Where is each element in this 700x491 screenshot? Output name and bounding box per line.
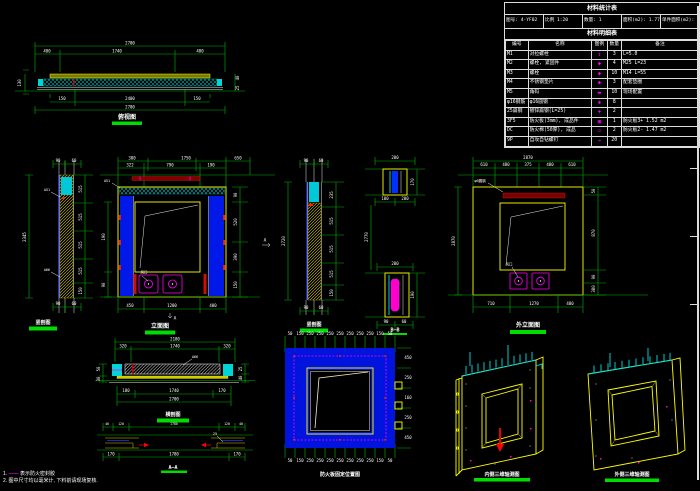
dim-label: 2770 — [364, 232, 369, 242]
table-cell-sym: ↕ — [592, 50, 607, 60]
dim-label: 380 — [591, 285, 596, 293]
table-row: M2螺栓, 紧固件◆4M25 L=23 — [506, 60, 699, 70]
dim-label: 190 — [101, 233, 106, 241]
table-cell-note: L=5.0 — [621, 50, 698, 60]
title-underline — [510, 330, 546, 334]
dim-label: 322 — [126, 163, 134, 168]
table-cell-no: DC — [506, 127, 529, 137]
svg-text:50: 50 — [288, 458, 293, 463]
end-cap — [223, 364, 233, 376]
front-face — [462, 360, 536, 470]
note-line: 2. 图中尺寸均以毫米计, 下料前请现场复核. — [3, 478, 98, 485]
table-cell-name: 防火板(3mm), 成品件 — [528, 117, 592, 127]
sheet-info-row: 图号: 4-YF02比例 1:20数量: 1面积(m2): 1.77单件面积(m… — [505, 15, 699, 29]
side-return — [536, 357, 543, 454]
dim-label: 50 — [96, 366, 101, 371]
dim-label: 90 — [101, 282, 106, 287]
dim-label: 235 — [329, 191, 334, 199]
dim-label: 60 — [319, 158, 324, 163]
dim-label: 480 — [196, 49, 204, 54]
table-cell-sym: ✚ — [592, 108, 607, 118]
table-cell-note: 防火板3+ 1.52 m2 — [621, 117, 698, 127]
view-title: 竖剖图 — [306, 321, 321, 328]
table-cell-sym: ◆ — [592, 69, 607, 79]
fireboard-hatch — [125, 364, 220, 374]
dim-label: 390 — [233, 253, 238, 261]
column-header: 图例 — [592, 41, 607, 51]
section-body — [59, 175, 74, 298]
bottom-joint-detail — [385, 273, 409, 317]
table-cell-no: M3 — [506, 69, 529, 79]
dim-label: 1780 — [169, 452, 179, 457]
dim-label: 200 — [391, 155, 399, 160]
panel-body — [285, 348, 402, 448]
panel-3d — [588, 348, 685, 470]
anchor-mark — [73, 79, 75, 86]
table-cell-note — [621, 136, 698, 146]
title-underline — [145, 331, 175, 335]
sheet-info-cell: 比例 1:20 — [544, 15, 583, 28]
svg-text:450: 450 — [404, 435, 412, 440]
dim-label: 710 — [487, 301, 495, 306]
svg-text:450: 450 — [404, 355, 412, 360]
table-cell-qty: 8 — [607, 98, 621, 108]
section-mark: A — [264, 238, 267, 244]
svg-text:250: 250 — [366, 458, 374, 463]
dim-label: 320 — [119, 344, 127, 349]
note-number: 1. — [3, 471, 7, 477]
rivet-dots — [596, 380, 673, 459]
table-cell-sym: ✱ — [592, 98, 607, 108]
section-mark: A — [174, 316, 177, 322]
table-row: M1对拉螺栓↕3L=5.0 — [506, 50, 699, 60]
opening-frame — [135, 202, 200, 272]
column-header: 名称 — [528, 41, 592, 51]
dim-label: 1200 — [167, 303, 177, 308]
side-return — [672, 358, 685, 454]
drawing-right-elevation: 2870 610 480 375 480 610 φ6圆钢 风口 2870 50… — [448, 155, 648, 335]
dim-label: 120 — [118, 422, 124, 426]
dim-label: 60 — [72, 301, 77, 306]
table-cell-qty: 2 — [607, 127, 621, 137]
view-title: 防火板固定位置图 — [320, 471, 360, 478]
dim-label: 190 — [410, 291, 415, 299]
dim-label: 150 — [233, 281, 238, 289]
dim-label: 1740 — [170, 344, 180, 349]
dim-label: 1750 — [181, 156, 191, 161]
table-cell-note: 防火板2- 1.47 m2 — [621, 127, 698, 137]
dim-label: 480 — [546, 162, 554, 167]
section-body — [95, 364, 255, 383]
table-cell-qty: 1 — [607, 117, 621, 127]
corner-bracket — [536, 364, 542, 369]
dim-label: 90 — [233, 192, 238, 197]
dim-label: 200 — [391, 261, 399, 266]
anchor-mark — [62, 197, 65, 199]
drawing-center-elevation: 300 1750 650 322 790 190 A51 风口 90 520 3… — [100, 155, 275, 335]
table-row: φ16钢筋φ16圆钢✱8 — [506, 98, 699, 108]
view-title: A—A — [168, 465, 177, 471]
table-cell-name: 螺栓, 紧固件 — [528, 60, 592, 70]
svg-text:50: 50 — [388, 331, 393, 336]
table-cell-note — [621, 108, 698, 118]
svg-text:50: 50 — [388, 458, 393, 463]
dim-label: 170 — [233, 452, 241, 457]
table-cell-name: 镀锌扁钢(L=25) — [528, 108, 592, 118]
dim-label: 150 — [329, 289, 334, 297]
dim-label: 2700 — [169, 397, 179, 402]
dim-label: 1270 — [529, 301, 539, 306]
dim-label: 190 — [207, 163, 215, 168]
table-cell-no: M4 — [506, 79, 529, 89]
dim-label: 515 — [329, 217, 334, 225]
dim-label: 2870 — [451, 236, 456, 246]
dim-label: 90 — [384, 319, 389, 324]
section-body — [307, 182, 322, 300]
table-cell-no: φ16钢筋 — [506, 98, 529, 108]
svg-text:250: 250 — [366, 331, 374, 336]
svg-text:150: 150 — [296, 331, 304, 336]
dim-label: 650 — [234, 156, 242, 161]
drawing-axo-inner: 内侧三维轴测图 — [440, 336, 570, 482]
table-cell-name: 螺栓 — [528, 69, 592, 79]
table-subtitle: 材料明细表 — [505, 29, 699, 40]
table-cell-note: M25 L=23 — [621, 60, 698, 70]
view-title: 立面图 — [151, 322, 169, 330]
leader-label: A51 — [104, 179, 110, 183]
drawing-bb-detail: 200 170 100 200 2770 200 190 90 60 B—B — [363, 155, 428, 335]
sheet-edge-line — [697, 6, 699, 480]
dim-label: 90 — [56, 158, 61, 163]
svg-text:150: 150 — [296, 458, 304, 463]
panel-3d — [456, 345, 543, 476]
leader-label: φ6圆钢 — [474, 178, 486, 183]
svg-text:250: 250 — [336, 331, 344, 336]
sheet-info-cell: 单件面积(m2): 1.21 — [661, 15, 699, 28]
leader-label: A66 — [192, 355, 198, 359]
dim-label: 50 — [591, 188, 596, 193]
rivet-dots — [466, 370, 531, 465]
table-cell-no: M5 — [506, 88, 529, 98]
drawing-bottom-section: 2180 320 1740 320 A66 50 30 25 40 180 17… — [95, 336, 255, 424]
infill-left — [120, 196, 133, 296]
plan-body — [15, 74, 245, 91]
table-cell-sym: ➔ — [592, 136, 607, 146]
dim-label: 2400 — [125, 96, 135, 101]
view-title: 外立面图 — [515, 321, 540, 329]
dim-label: 90 — [591, 274, 596, 279]
dim-label: 450 — [126, 303, 134, 308]
dim-label: 130 — [17, 79, 22, 87]
dim-label: 790 — [166, 163, 174, 168]
dim-label: 170 — [218, 388, 226, 393]
anchor-mark — [132, 364, 134, 374]
dim-label: 870 — [591, 229, 596, 237]
steel-angle-bar — [117, 376, 228, 379]
materials-header: 编号名称图例数量备注 — [506, 41, 699, 51]
table-cell-sym: ▭ — [592, 127, 607, 137]
table-cell-qty: 4 — [607, 60, 621, 70]
dim-label: 120 — [224, 422, 230, 426]
dim-label: 40 — [238, 375, 243, 380]
table-cell-qty: 3 — [607, 79, 621, 89]
table-row: DC防火棉(50厚), 成品▭2防火板2- 1.47 m2 — [506, 127, 699, 137]
anchor-mark — [309, 204, 313, 206]
title-underline — [112, 122, 142, 126]
svg-text:250: 250 — [326, 458, 334, 463]
view-title: 横剖图 — [164, 411, 180, 418]
dim-label: 520 — [233, 218, 238, 226]
dim-label: 90 — [304, 158, 309, 163]
drawing-mid-section: 90 60 2720 235 515 515 515 150 90 60 竖剖图 — [278, 155, 363, 335]
dim-label: 30 — [96, 376, 101, 381]
dim-label: 2345 — [22, 232, 27, 242]
title-underline — [161, 471, 187, 474]
svg-text:250: 250 — [336, 458, 344, 463]
dim-label: 480 — [566, 301, 574, 306]
weld-studs — [594, 353, 670, 373]
svg-text:250: 250 — [346, 331, 354, 336]
table-cell-qty: 20 — [607, 136, 621, 146]
glass-diagonal — [140, 205, 198, 268]
svg-text:50: 50 — [288, 331, 293, 336]
table-cell-name: 角码 — [528, 88, 592, 98]
dim-label: 515 — [78, 241, 83, 249]
title-underline — [474, 478, 530, 482]
opening — [309, 370, 371, 432]
table-cell-qty: 2 — [607, 108, 621, 118]
dim-label: 400 — [209, 303, 217, 308]
sheet-edge-tick — [690, 236, 698, 237]
svg-text:250: 250 — [404, 415, 412, 420]
end-cap — [217, 79, 222, 86]
table-cell-sym: ▬ — [592, 88, 607, 98]
svg-text:150: 150 — [376, 458, 384, 463]
materials-rows: M1对拉螺栓↕3L=5.0M2螺栓, 紧固件◆4M25 L=23M3螺栓◆10M… — [506, 50, 699, 146]
view-title: 竖剖图 — [35, 319, 50, 326]
dim-label: 1780 — [170, 422, 178, 426]
dim-label: 610 — [568, 162, 576, 167]
mesh-strip — [43, 79, 217, 86]
leader-label: 风口 — [506, 263, 514, 267]
svg-text:250: 250 — [356, 458, 364, 463]
sheet-edge-tick — [690, 168, 698, 169]
dim-label: 2720 — [281, 236, 286, 246]
title-underline — [29, 327, 57, 331]
dim-label: 25 — [235, 85, 240, 90]
dim-label: 480 — [502, 162, 510, 167]
dim-label: 2700 — [125, 105, 135, 110]
dim-label: 40 — [235, 75, 240, 80]
table-cell-name: φ16圆钢 — [528, 98, 592, 108]
column-header: 编号 — [506, 41, 529, 51]
dim-label: 25 — [238, 366, 243, 371]
table-cell-no: 3F5 — [506, 117, 529, 127]
svg-text:150: 150 — [376, 331, 384, 336]
leader-label: 25 — [213, 432, 217, 436]
table-row: 3F5防火板(3mm), 成品件▣1防火板3+ 1.52 m2 — [506, 117, 699, 127]
table-cell-no: 9P — [506, 136, 529, 146]
leader-label: 风口 — [141, 271, 148, 275]
dim-label: 1740 — [112, 49, 122, 54]
table-cell-name: 不锈钢垫片 — [528, 79, 592, 89]
top-joint-detail — [383, 169, 407, 195]
dim-label: 375 — [524, 162, 532, 167]
left-jamb-detail — [105, 438, 149, 448]
table-title: 材料统计表 — [505, 3, 699, 15]
table-cell-qty: 10 — [607, 88, 621, 98]
view-title: 俯视图 — [118, 113, 136, 121]
table-cell-no: M1 — [506, 50, 529, 60]
drawing-top-plan: 2700 480 1740 480 150 2400 150 2700 130 … — [15, 38, 245, 128]
dim-label: 2700 — [125, 41, 135, 46]
dim-label: 170 — [107, 452, 115, 457]
dim-label: 40 — [239, 422, 243, 426]
dim-label: 60 — [402, 319, 407, 324]
dim-label: 60 — [319, 305, 324, 310]
sheet-edge-tick — [690, 304, 698, 305]
dim-label: 90 — [304, 305, 309, 310]
dim-label: 170 — [410, 178, 415, 186]
svg-text:250: 250 — [306, 458, 314, 463]
dim-label: 2870 — [523, 155, 533, 160]
svg-text:250: 250 — [306, 331, 314, 336]
table-cell-qty: 3 — [607, 50, 621, 60]
table-row: 9P自攻自钻螺钉➔20 — [506, 136, 699, 146]
view-title: 内侧三维轴测图 — [484, 471, 519, 478]
dim-label: 90 — [56, 301, 61, 306]
column-header: 备注 — [621, 41, 698, 51]
note-text: 表示防火密封胶 — [20, 471, 55, 477]
dim-label: 200 — [401, 196, 409, 201]
svg-text:250: 250 — [316, 331, 324, 336]
table-row: M5角码▬10现场配置 — [506, 88, 699, 98]
dim-label: 320 — [223, 344, 231, 349]
table-row: 25扁钢镀锌扁钢(L=25)✚2 — [506, 108, 699, 118]
dim-label: 300 — [128, 156, 136, 161]
table-cell-no: M2 — [506, 60, 529, 70]
dim-label: 515 — [78, 267, 83, 275]
table-cell-note: 现场配置 — [621, 88, 698, 98]
table-cell-name: 防火棉(50厚), 成品 — [528, 127, 592, 137]
svg-text:250: 250 — [326, 331, 334, 336]
table-cell-sym: ◆ — [592, 79, 607, 89]
drawing-blue-panel: 50150 250250 250250 250250 250150 50 501… — [265, 332, 415, 480]
dim-label: 100 — [381, 196, 389, 201]
drawing-left-section: 90 60 2345 515 515 515 515 150 A51 A66 9… — [15, 155, 105, 335]
table-cell-qty: 10 — [607, 69, 621, 79]
general-notes: 1. —— 表示防火密封胶 2. 图中尺寸均以毫米计, 下料前请现场复核. — [3, 471, 98, 484]
right-jamb-detail — [201, 438, 245, 448]
svg-text:250: 250 — [316, 458, 324, 463]
svg-text:250: 250 — [346, 458, 354, 463]
dim-label: 515 — [329, 245, 334, 253]
dim-label: 2180 — [170, 337, 180, 342]
title-underline — [605, 479, 659, 483]
table-cell-sym: ◆ — [592, 60, 607, 70]
dim-label: 150 — [78, 287, 83, 295]
fireboard-hatch — [308, 203, 321, 300]
vent-side-strip — [204, 274, 207, 294]
dim-label: 180 — [122, 388, 130, 393]
materials-grid: 编号名称图例数量备注 M1对拉螺栓↕3L=5.0M2螺栓, 紧固件◆4M25 L… — [505, 40, 699, 147]
table-cell-note: M14 L=55 — [621, 69, 698, 79]
glass-diagonal — [506, 206, 563, 265]
sheet-info-cell: 面积(m2): 1.77 — [622, 15, 661, 28]
drawing-axo-outer: 外侧三维轴测图 — [572, 340, 697, 482]
sheet-info-cell: 数量: 1 — [583, 15, 622, 28]
sealant-legend-symbol: —— — [9, 471, 19, 477]
dim-label: 40 — [105, 422, 109, 426]
table-cell-note: 配套垫圈 — [621, 79, 698, 89]
mesh-band — [120, 188, 225, 194]
table-cell-note — [621, 98, 698, 108]
dim-label: 515 — [329, 270, 334, 278]
dim-label: 150 — [193, 96, 201, 101]
material-table: 材料统计表 图号: 4-YF02比例 1:20数量: 1面积(m2): 1.77… — [504, 2, 700, 148]
steel-angle-bar — [50, 74, 210, 78]
leader-label: A51 — [44, 188, 50, 192]
drawing-aa-section: 40 120 1780 120 40 25 170 1780 170 A—A — [93, 422, 258, 478]
elevation-body — [448, 187, 648, 295]
mesh-block — [61, 177, 72, 195]
end-cap — [38, 79, 43, 86]
svg-text:250: 250 — [404, 375, 412, 380]
dim-label: 515 — [78, 185, 83, 193]
mesh-block — [309, 182, 319, 202]
dim-label: 515 — [78, 213, 83, 221]
svg-text:250: 250 — [356, 331, 364, 336]
dim-label: 150 — [58, 96, 66, 101]
vent-side-strip — [134, 274, 137, 294]
dim-label: 480 — [43, 49, 51, 54]
dim-label: 610 — [480, 162, 488, 167]
table-cell-name: 自攻自钻螺钉 — [528, 136, 592, 146]
sheet-info-cell: 图号: 4-YF02 — [505, 15, 544, 28]
table-cell-sym: ▣ — [592, 117, 607, 127]
svg-text:160: 160 — [404, 395, 412, 400]
infill-right — [209, 196, 224, 296]
front-face — [588, 360, 678, 470]
table-row: M4不锈钢垫片◆3配套垫圈 — [506, 79, 699, 89]
view-title: 外侧三维轴测图 — [614, 471, 649, 478]
table-cell-no: 25扁钢 — [506, 108, 529, 118]
leader-label: A66 — [44, 268, 50, 272]
top-mesh-edge — [462, 360, 536, 376]
table-cell-name: 对拉螺栓 — [528, 50, 592, 60]
opening-frame — [500, 203, 565, 270]
table-row: M3螺栓◆10M14 L=55 — [506, 69, 699, 79]
dim-label: 1740 — [169, 388, 179, 393]
lintel-bar — [503, 193, 565, 198]
column-header: 数量 — [607, 41, 621, 51]
dim-label: 60 — [72, 158, 77, 163]
